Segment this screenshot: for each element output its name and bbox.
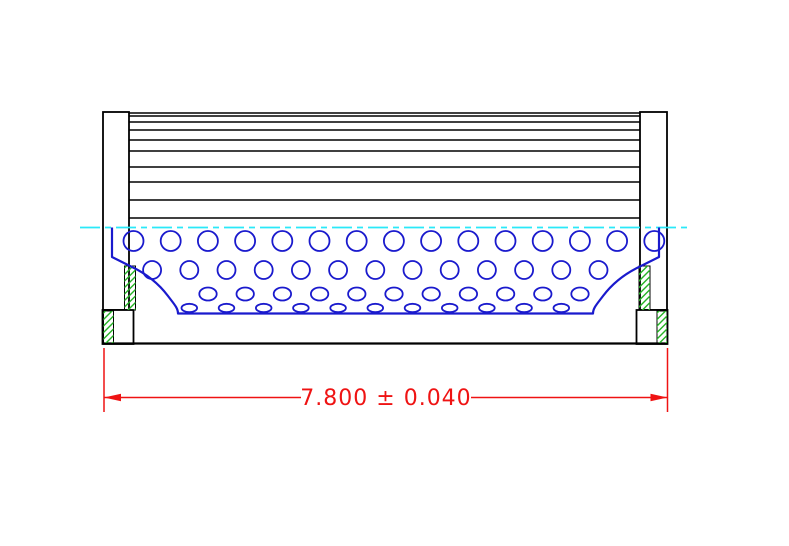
perforation-hole: [442, 304, 458, 312]
perforation-hole: [515, 261, 533, 279]
dimension-group: 7.800 ± 0.040: [104, 348, 668, 412]
pleat-lines-group: [129, 113, 640, 218]
perforation-hole: [347, 231, 367, 251]
perforation-hole: [385, 288, 402, 301]
perforation-hole: [366, 261, 384, 279]
perforation-hole: [219, 304, 235, 312]
perforated-core-group: [112, 228, 664, 314]
technical-drawing: 7.800 ± 0.040: [0, 0, 789, 546]
perforation-hole: [590, 261, 608, 279]
perforation-hole: [293, 304, 309, 312]
perforation-hole: [497, 288, 514, 301]
perforation-hole: [310, 231, 330, 251]
perforation-hole: [368, 304, 384, 312]
perforation-hole: [478, 261, 496, 279]
perforation-hole: [161, 231, 181, 251]
perforation-hole: [404, 261, 422, 279]
perforation-hole: [256, 304, 272, 312]
arrowhead-right: [651, 394, 668, 402]
perforation-hole: [423, 288, 440, 301]
arrowhead-left: [104, 394, 121, 402]
perforation-hole: [533, 231, 553, 251]
perforation-hole: [330, 304, 346, 312]
perforation-hole: [329, 261, 347, 279]
perforation-hole: [255, 261, 273, 279]
perforation-hole: [235, 231, 255, 251]
perforation-hole: [405, 304, 421, 312]
perforation-hole: [311, 288, 328, 301]
right-cap: [640, 112, 667, 310]
perforation-hole: [552, 261, 570, 279]
perforation-hole: [496, 231, 516, 251]
perforation-hole: [516, 304, 532, 312]
perforation-hole: [479, 304, 495, 312]
perforation-hole: [441, 261, 459, 279]
dimension-text: 7.800 ± 0.040: [300, 386, 471, 411]
perforation-hole: [554, 304, 570, 312]
perforation-hole: [180, 261, 198, 279]
perforation-hole: [143, 261, 161, 279]
drawing-canvas: 7.800 ± 0.040: [0, 0, 789, 546]
perforation-hole: [570, 231, 590, 251]
perforation-hole: [460, 288, 477, 301]
perforation-hole: [218, 261, 236, 279]
perforation-hole: [198, 231, 218, 251]
perforation-hole: [421, 231, 441, 251]
perforation-hole: [571, 288, 588, 301]
perforation-hole: [182, 304, 198, 312]
perforation-hole: [534, 288, 551, 301]
perforation-hole: [458, 231, 478, 251]
perforation-hole: [348, 288, 365, 301]
perforation-hole: [199, 288, 216, 301]
perforation-hole: [237, 288, 254, 301]
perforation-hole: [384, 231, 404, 251]
perforation-hole: [274, 288, 291, 301]
perforation-hole: [272, 231, 292, 251]
perforation-hole: [292, 261, 310, 279]
perforation-hole: [607, 231, 627, 251]
